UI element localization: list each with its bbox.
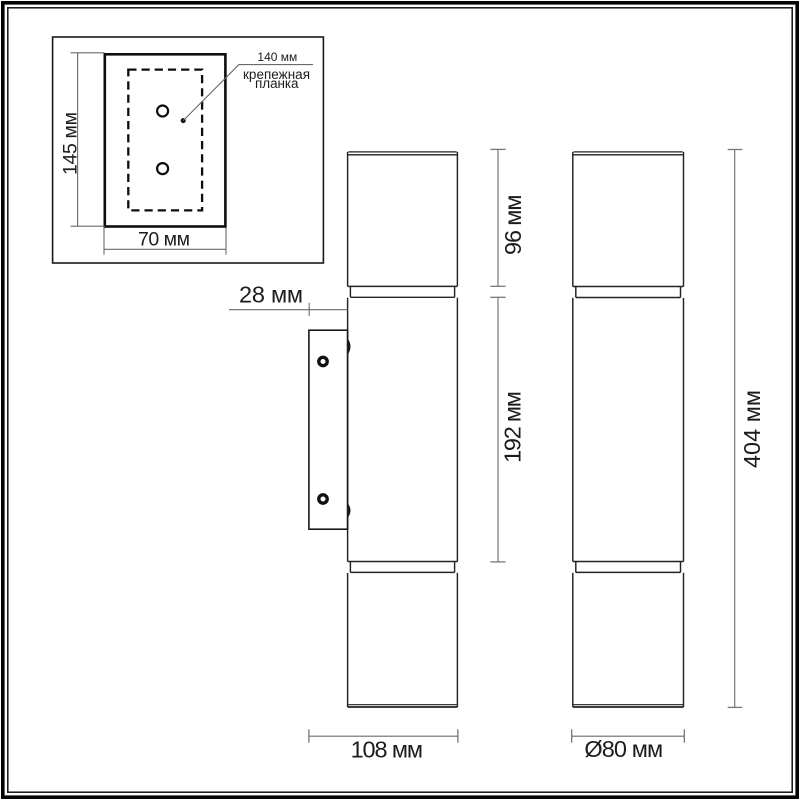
svg-text:404 мм: 404 мм — [739, 390, 765, 468]
svg-text:108 мм: 108 мм — [351, 737, 423, 763]
svg-text:96 мм: 96 мм — [500, 195, 526, 256]
svg-text:планка: планка — [255, 76, 299, 91]
svg-text:28 мм: 28 мм — [239, 282, 303, 308]
svg-text:145 мм: 145 мм — [59, 112, 81, 175]
svg-text:140 мм: 140 мм — [257, 50, 297, 64]
svg-text:Ø80 мм: Ø80 мм — [584, 736, 663, 762]
svg-text:192 мм: 192 мм — [500, 391, 526, 463]
svg-text:70 мм: 70 мм — [138, 229, 190, 251]
